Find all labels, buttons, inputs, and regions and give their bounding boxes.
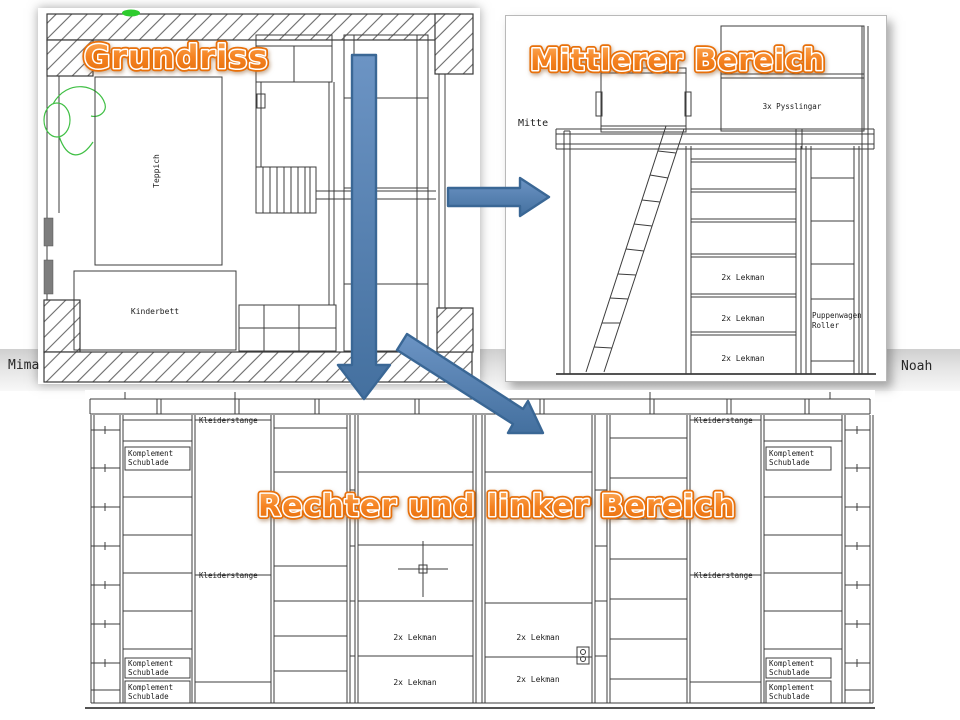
komplement-left-bot1-line2: Schublade [128,668,169,677]
lekman-label-1: 2x Lekman [721,273,765,282]
komplement-left-bot2-line1: Komplement [128,683,173,692]
green-marker [122,10,140,17]
puppenwagen-label-line2: Roller [812,321,840,330]
wardrobe-frame [85,392,875,708]
title-rechter-fill: Rechter und linker Bereich [258,489,736,524]
mitte-label: Mitte [518,118,548,129]
right-tick-column [845,426,870,690]
lekman-wardrobe-3: 2x Lekman [516,633,560,642]
side-name-mima: Mima [8,358,39,373]
pysslingar-label: 3x Pysslingar [763,102,822,111]
komplement-right-bot2-line2: Schublade [769,692,810,701]
lekman-label-2: 2x Lekman [721,314,765,323]
wardrobe-drawing: Komplement Schublade Komplement Schublad… [85,390,875,715]
left-shelf-column [274,428,355,671]
title-grundriss-fill: Grundriss [84,38,268,76]
kinderbett-area: Kinderbett [74,271,236,350]
komplement-left-top-line1: Komplement [128,449,173,458]
komplement-left-top-line2: Schublade [128,458,169,467]
left-kleiderstange-column [195,420,271,682]
ladder [586,126,684,372]
lekman-wardrobe-1: 2x Lekman [393,633,437,642]
kleiderstange-right-mid: Kleiderstange [694,571,753,580]
lekman-wardrobe-4: 2x Lekman [516,675,560,684]
left-tick-column [91,426,120,690]
title-rechter-linker-bereich: Rechter und linker Bereich Rechter und l… [250,476,750,534]
komplement-right-bot1-line1: Komplement [769,659,814,668]
kleiderstange-right-top: Kleiderstange [694,416,753,425]
wardrobe-verticals [91,415,873,703]
kleiderstange-left-top: Kleiderstange [199,416,258,425]
komplement-right-top-line1: Komplement [769,449,814,458]
puppenwagen-label-line1: Puppenwagen [812,311,862,320]
komplement-left-bot1-line1: Komplement [128,659,173,668]
kleiderstange-left-mid: Kleiderstange [199,571,258,580]
door-jamb-lower [44,260,53,294]
lekman-wardrobe-2: 2x Lekman [393,678,437,687]
kinderbett-label: Kinderbett [131,307,179,316]
lekman-label-3: 2x Lekman [721,354,765,363]
shelf-column [686,146,801,374]
title-grundriss: Grundriss Grundriss Grundriss [76,22,286,86]
right-shelf-column [610,438,687,679]
door-jamb-upper [44,218,53,246]
komplement-right-bot2-line1: Komplement [769,683,814,692]
title-mittlerer-bereich: Mittlerer Bereich Mittlerer Bereich Mitt… [522,30,852,88]
title-mittlerer-fill: Mittlerer Bereich [530,43,825,77]
teppich-label: Teppich [152,154,161,188]
slide: Teppich Kinderbett [0,0,960,720]
right-kleiderstange-column [690,420,761,682]
komplement-left-bot2-line2: Schublade [128,692,169,701]
komplement-right-bot1-line2: Schublade [769,668,810,677]
komplement-right-top-line2: Schublade [769,458,810,467]
side-name-noah: Noah [901,359,932,374]
wardrobe-panel: Komplement Schublade Komplement Schublad… [85,390,875,715]
teppich-area: Teppich [95,77,222,265]
